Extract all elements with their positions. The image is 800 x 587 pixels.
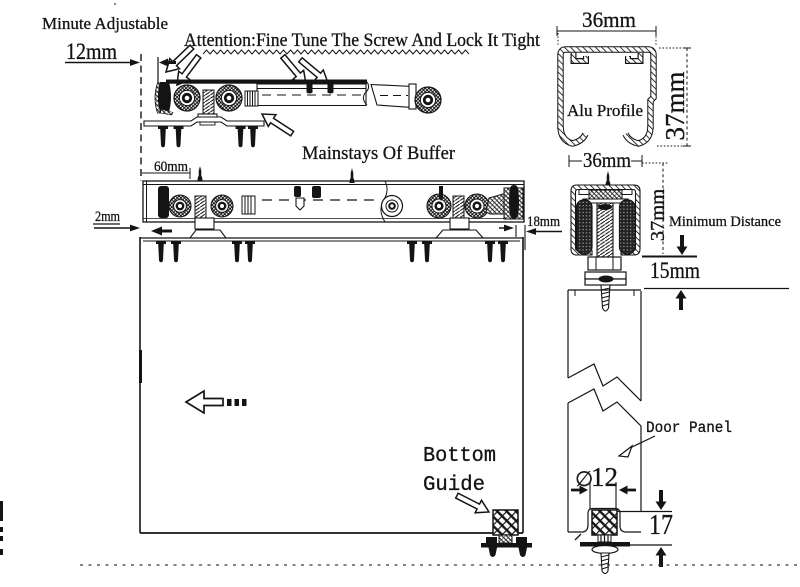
svg-text:Guide: Guide (423, 474, 485, 497)
svg-text:12mm: 12mm (66, 39, 117, 64)
svg-text:37mm: 37mm (647, 189, 669, 241)
svg-text:2mm: 2mm (95, 209, 120, 225)
svg-text:36mm: 36mm (582, 7, 636, 32)
svg-text:15mm: 15mm (650, 258, 700, 283)
svg-text:17: 17 (649, 510, 673, 541)
svg-text:12: 12 (591, 462, 618, 492)
svg-text:Alu Profile: Alu Profile (567, 101, 643, 120)
svg-text:36mm: 36mm (583, 148, 631, 172)
svg-text:Bottom: Bottom (423, 445, 496, 468)
svg-text:18mm: 18mm (527, 214, 560, 230)
svg-text:Minute Adjustable: Minute Adjustable (42, 14, 168, 33)
svg-text:37mm: 37mm (660, 71, 690, 140)
svg-text:Minimum Distance: Minimum Distance (669, 214, 781, 230)
svg-text:Attention:Fine Tune The Screw: Attention:Fine Tune The Screw And Lock I… (184, 31, 541, 51)
svg-text:Door Panel: Door Panel (646, 419, 732, 437)
svg-text:Mainstays Of Buffer: Mainstays Of Buffer (302, 143, 456, 164)
